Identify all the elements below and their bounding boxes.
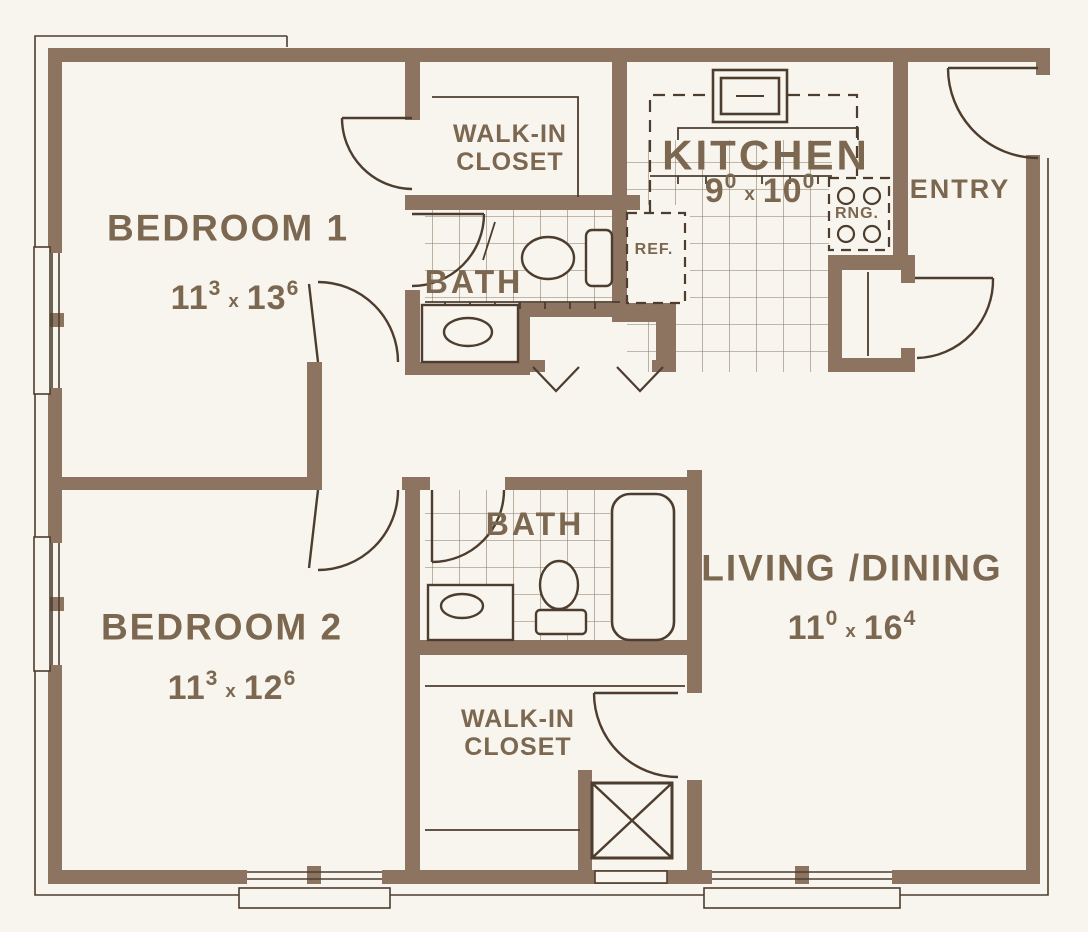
label-refrigerator: REF. <box>635 241 674 259</box>
kitchen-dimensions: 90x100 <box>705 172 816 210</box>
dim-sep: x <box>225 680 236 701</box>
room-label-bedroom-1: BEDROOM 1 <box>107 207 349 248</box>
dim-sup: 0 <box>826 607 839 630</box>
dim-value: 12 <box>244 669 284 707</box>
room-label-bedroom-2: BEDROOM 2 <box>101 606 343 647</box>
label-range: RNG. <box>835 205 879 223</box>
dim-sup: 6 <box>284 667 297 690</box>
walk-in-line2: CLOSET <box>461 733 575 761</box>
dim-value: 11 <box>788 609 826 647</box>
utility-box <box>592 783 672 883</box>
room-label-bath-1: BATH <box>425 265 524 301</box>
bedroom-1-dimensions: 113x136 <box>171 279 300 317</box>
bedroom1-door <box>309 282 398 362</box>
room-label-entry: ENTRY <box>910 174 1011 204</box>
dim-value: 13 <box>247 279 287 317</box>
dim-value: 10 <box>763 172 803 210</box>
utility-access-panel <box>595 871 667 883</box>
room-label-living-dining: LIVING /DINING <box>701 547 1002 588</box>
bath2-bathtub <box>612 494 674 640</box>
dim-sup: 3 <box>206 667 219 690</box>
dim-sup: 3 <box>209 277 222 300</box>
dim-sep: x <box>845 620 856 641</box>
dim-value: 9 <box>705 172 725 210</box>
walk-in-line2: CLOSET <box>453 148 567 176</box>
bath2-vanity-sink <box>428 585 513 640</box>
room-label-bath-2: BATH <box>486 507 585 543</box>
bath1-vanity-sink <box>422 305 518 362</box>
room-label-walk-in-closet-1: WALK-IN CLOSET <box>453 120 567 176</box>
kitchen-sink <box>713 70 787 122</box>
dim-sup: 4 <box>904 607 917 630</box>
closet2-door <box>594 693 678 777</box>
walk-in-line1: WALK-IN <box>453 120 567 148</box>
floor-plan: BEDROOM 1 113x136 WALK-IN CLOSET BATH KI… <box>0 0 1088 932</box>
walk-in-line1: WALK-IN <box>461 705 575 733</box>
living-dining-dimensions: 110x164 <box>788 609 917 647</box>
entry-closet-door <box>915 278 993 358</box>
dim-sup: 0 <box>725 170 738 193</box>
room-label-walk-in-closet-2: WALK-IN CLOSET <box>461 705 575 761</box>
dim-value: 11 <box>171 279 209 317</box>
dim-sup: 6 <box>287 277 300 300</box>
dim-sup: 0 <box>803 170 816 193</box>
dim-value: 16 <box>864 609 904 647</box>
dim-value: 11 <box>168 669 206 707</box>
closet1-door <box>342 118 412 189</box>
dim-sep: x <box>228 290 239 311</box>
bedroom-2-dimensions: 113x126 <box>168 669 297 707</box>
entry-door <box>948 68 1038 158</box>
bedroom2-door <box>309 490 398 570</box>
dim-sep: x <box>744 183 755 204</box>
